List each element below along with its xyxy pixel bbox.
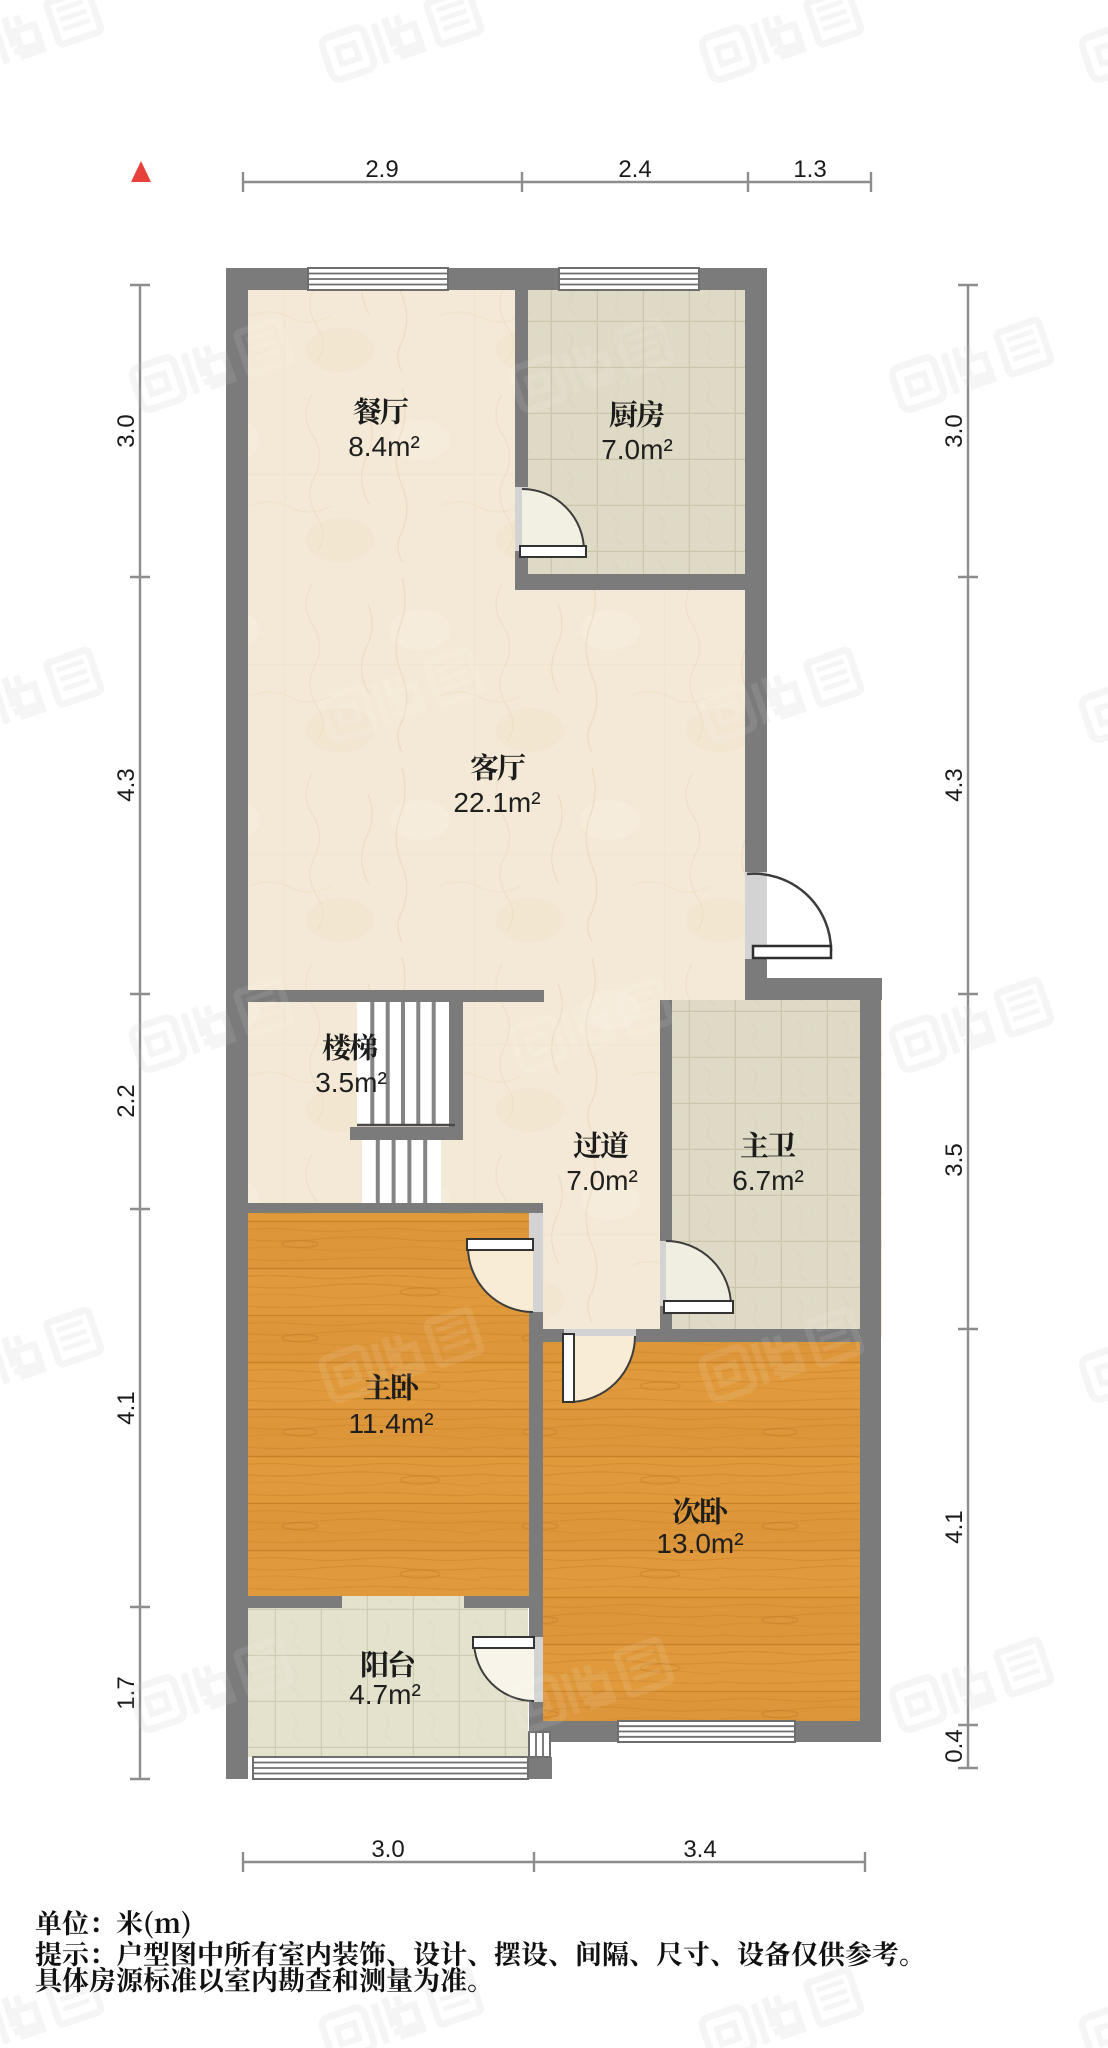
svg-text:4.3: 4.3	[941, 768, 968, 801]
svg-text:22.1m²: 22.1m²	[453, 787, 540, 818]
svg-text:0.4: 0.4	[941, 1729, 968, 1762]
svg-text:2.9: 2.9	[365, 156, 398, 183]
svg-text:3.0: 3.0	[941, 414, 968, 447]
svg-text:3.0: 3.0	[371, 1836, 404, 1863]
svg-text:7.0m²: 7.0m²	[566, 1165, 638, 1196]
svg-text:3.5m²: 3.5m²	[315, 1067, 387, 1098]
svg-text:11.4m²: 11.4m²	[348, 1408, 433, 1439]
svg-text:2.2: 2.2	[113, 1084, 140, 1117]
svg-text:3.4: 3.4	[683, 1836, 716, 1863]
svg-text:13.0m²: 13.0m²	[656, 1528, 743, 1559]
svg-text:7.0m²: 7.0m²	[601, 434, 673, 465]
svg-text:3.5: 3.5	[941, 1143, 968, 1176]
svg-text:4.1: 4.1	[941, 1510, 968, 1543]
svg-text:6.7m²: 6.7m²	[732, 1165, 804, 1196]
svg-text:1.3: 1.3	[793, 156, 826, 183]
svg-text:4.3: 4.3	[113, 768, 140, 801]
svg-text:3.0: 3.0	[113, 414, 140, 447]
svg-text:8.4m²: 8.4m²	[348, 431, 420, 462]
svg-text:4.7m²: 4.7m²	[349, 1679, 421, 1710]
svg-text:2.4: 2.4	[618, 156, 651, 183]
svg-text:4.1: 4.1	[113, 1391, 140, 1424]
